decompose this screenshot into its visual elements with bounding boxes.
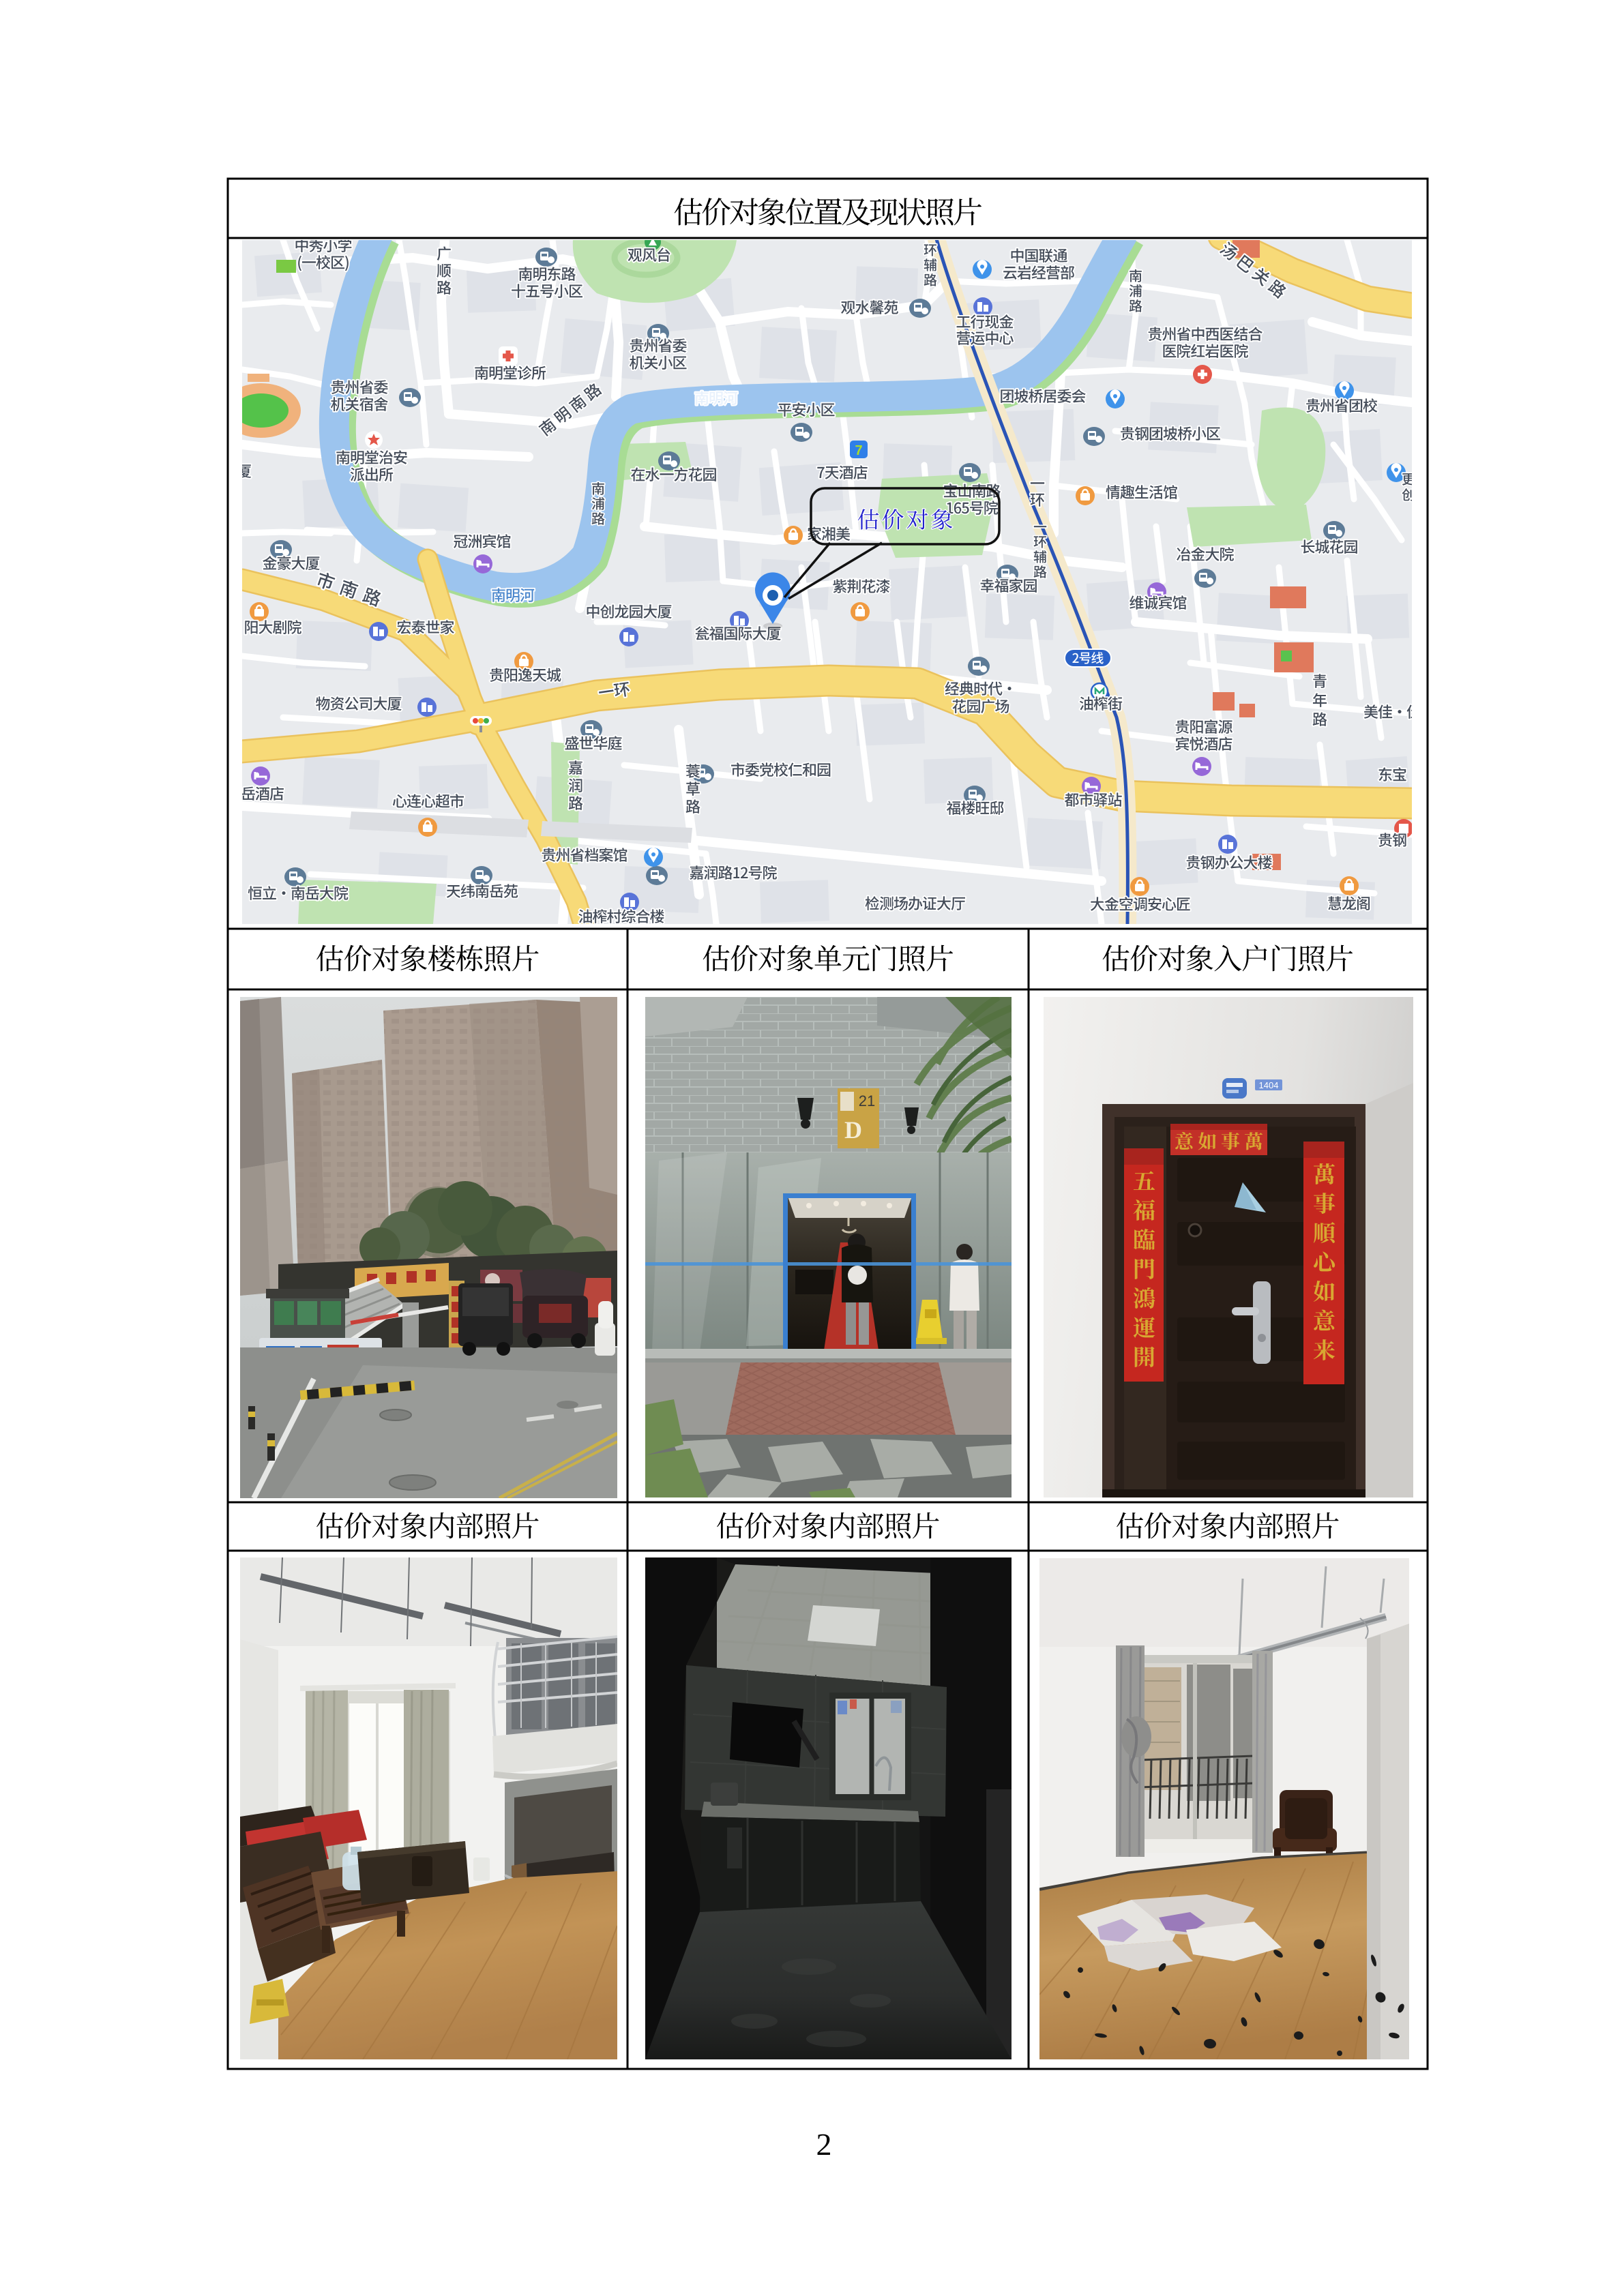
svg-text:D: D xyxy=(844,1116,862,1144)
svg-text:1404: 1404 xyxy=(1259,1080,1279,1090)
svg-text:21: 21 xyxy=(859,1092,875,1109)
svg-text:2: 2 xyxy=(816,2127,832,2162)
